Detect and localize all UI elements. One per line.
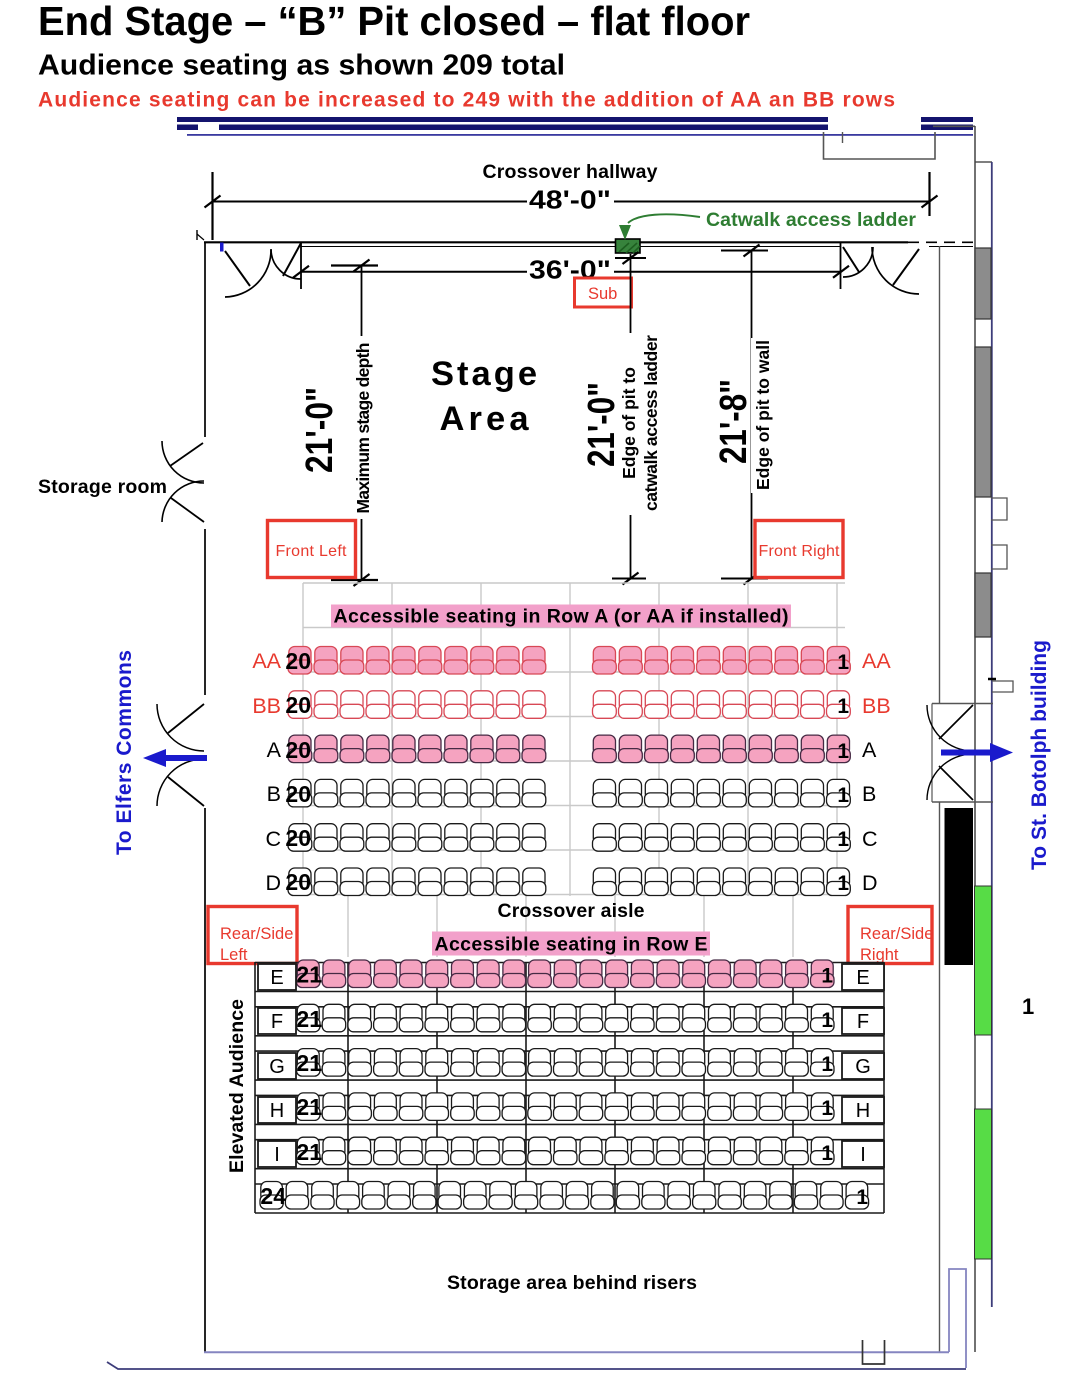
svg-text:21: 21	[296, 962, 322, 988]
svg-text:21'-0": 21'-0"	[581, 382, 623, 467]
svg-text:Accessible seating in Row E: Accessible seating in Row E	[435, 934, 708, 956]
svg-text:C: C	[862, 827, 878, 851]
svg-text:1: 1	[837, 695, 849, 718]
svg-text:20: 20	[285, 825, 311, 851]
svg-text:E: E	[856, 967, 869, 989]
svg-text:1: 1	[1022, 994, 1034, 1019]
svg-text:C: C	[265, 827, 281, 851]
svg-text:21: 21	[296, 1094, 322, 1120]
svg-text:1: 1	[837, 784, 849, 807]
svg-text:Front Left: Front Left	[276, 543, 348, 560]
svg-text:Maximum stage depth: Maximum stage depth	[353, 343, 373, 514]
svg-text:20: 20	[285, 869, 311, 895]
svg-text:AA: AA	[862, 649, 891, 673]
svg-text:End Stage – “B” Pit closed – f: End Stage – “B” Pit closed – flat floor	[38, 0, 750, 44]
svg-text:1: 1	[821, 1097, 833, 1120]
svg-text:21'-0": 21'-0"	[299, 387, 341, 473]
svg-text:F: F	[271, 1011, 283, 1033]
svg-text:B: B	[267, 782, 281, 806]
svg-text:24: 24	[260, 1183, 286, 1209]
svg-text:AA: AA	[252, 649, 281, 673]
svg-text:1: 1	[837, 828, 849, 851]
svg-text:Storage area behind risers: Storage area behind risers	[447, 1272, 697, 1294]
svg-text:1: 1	[837, 740, 849, 763]
svg-text:Left: Left	[220, 946, 248, 964]
svg-text:1: 1	[821, 1142, 833, 1165]
svg-text:Edge of pit to: Edge of pit to	[619, 367, 639, 479]
svg-text:Edge of pit to wall: Edge of pit to wall	[753, 340, 773, 490]
svg-text:To St. Botolph building: To St. Botolph building	[1028, 640, 1051, 870]
svg-text:1: 1	[856, 1186, 868, 1209]
svg-text:B: B	[862, 782, 876, 806]
svg-text:Front Right: Front Right	[759, 543, 841, 560]
svg-text:Crossover aisle: Crossover aisle	[498, 900, 645, 922]
svg-text:48'-0": 48'-0"	[529, 185, 611, 215]
svg-text:G: G	[269, 1056, 285, 1078]
svg-text:21: 21	[296, 1006, 322, 1032]
svg-text:G: G	[855, 1056, 871, 1078]
svg-text:Elevated Audience: Elevated Audience	[226, 999, 248, 1173]
svg-text:catwalk access ladder: catwalk access ladder	[641, 335, 661, 511]
svg-text:1: 1	[821, 1053, 833, 1076]
svg-text:I: I	[860, 1144, 866, 1166]
svg-text:20: 20	[285, 692, 311, 718]
svg-text:A: A	[862, 738, 877, 762]
svg-text:E: E	[270, 967, 283, 989]
svg-text:20: 20	[285, 737, 311, 763]
svg-text:21: 21	[296, 1050, 322, 1076]
svg-text:Stage: Stage	[431, 355, 537, 393]
svg-text:D: D	[862, 871, 878, 895]
svg-text:Crossover hallway: Crossover hallway	[483, 161, 658, 183]
svg-text:Audience seating as shown 209: Audience seating as shown 209 total	[38, 50, 565, 82]
svg-text:1: 1	[837, 872, 849, 895]
svg-text:21'-8": 21'-8"	[713, 379, 755, 464]
svg-text:Storage room: Storage room	[38, 476, 167, 498]
svg-text:Rear/Side: Rear/Side	[220, 925, 293, 943]
svg-text:Audience seating can be increa: Audience seating can be increased to 249…	[38, 89, 895, 112]
svg-text:Accessible seating in Row A (o: Accessible seating in Row A (or AA if in…	[334, 606, 789, 628]
svg-text:H: H	[270, 1100, 284, 1122]
svg-text:Catwalk access ladder: Catwalk access ladder	[706, 209, 916, 231]
svg-text:20: 20	[285, 781, 311, 807]
svg-text:Rear/Side: Rear/Side	[860, 925, 933, 943]
svg-text:Right: Right	[860, 946, 899, 964]
svg-text:1: 1	[821, 965, 833, 988]
svg-text:H: H	[856, 1100, 870, 1122]
svg-text:20: 20	[285, 648, 311, 674]
svg-text:To Elfers Commons: To Elfers Commons	[113, 650, 136, 855]
svg-text:F: F	[857, 1011, 869, 1033]
svg-text:21: 21	[296, 1139, 322, 1165]
svg-text:1: 1	[821, 1009, 833, 1032]
svg-text:D: D	[265, 871, 281, 895]
svg-text:BB: BB	[862, 694, 891, 718]
svg-text:A: A	[267, 738, 282, 762]
svg-text:I: I	[274, 1144, 280, 1166]
svg-text:1: 1	[837, 651, 849, 674]
svg-text:Sub: Sub	[588, 285, 617, 303]
svg-text:BB: BB	[252, 694, 281, 718]
